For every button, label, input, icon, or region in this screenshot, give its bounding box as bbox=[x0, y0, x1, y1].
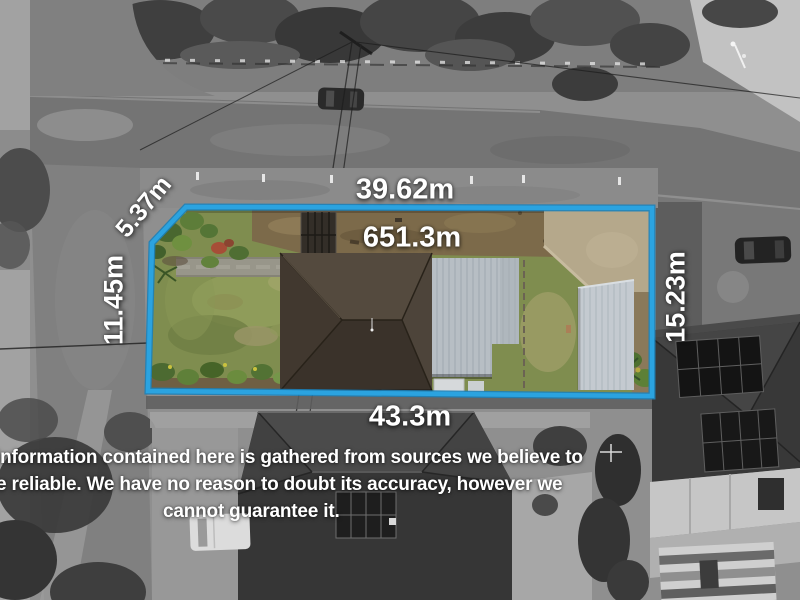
pergola bbox=[301, 212, 336, 258]
main-house-roof bbox=[280, 253, 432, 394]
disclaimer-line-3: cannot guarantee it. bbox=[163, 501, 340, 523]
car-right-road bbox=[735, 236, 792, 264]
skylight-grid bbox=[336, 492, 396, 538]
measurement-right: 15.23m bbox=[663, 251, 690, 343]
aerial-property-photo: 39.62m 651.3m 5.37m 11.45m 15.23m 43.3m … bbox=[0, 0, 800, 600]
striped-shed bbox=[659, 542, 777, 600]
garage-roof bbox=[578, 280, 634, 390]
measurement-top: 39.62m bbox=[356, 176, 454, 205]
measurement-left: 11.45m bbox=[101, 255, 128, 345]
car-top-road bbox=[318, 87, 365, 111]
measurement-area: 651.3m bbox=[363, 224, 461, 253]
disclaimer-line-1: information contained here is gathered f… bbox=[0, 447, 583, 469]
measurement-bottom: 43.3m bbox=[369, 403, 451, 432]
disclaimer-line-2: e reliable. We have no reason to doubt i… bbox=[0, 474, 562, 496]
